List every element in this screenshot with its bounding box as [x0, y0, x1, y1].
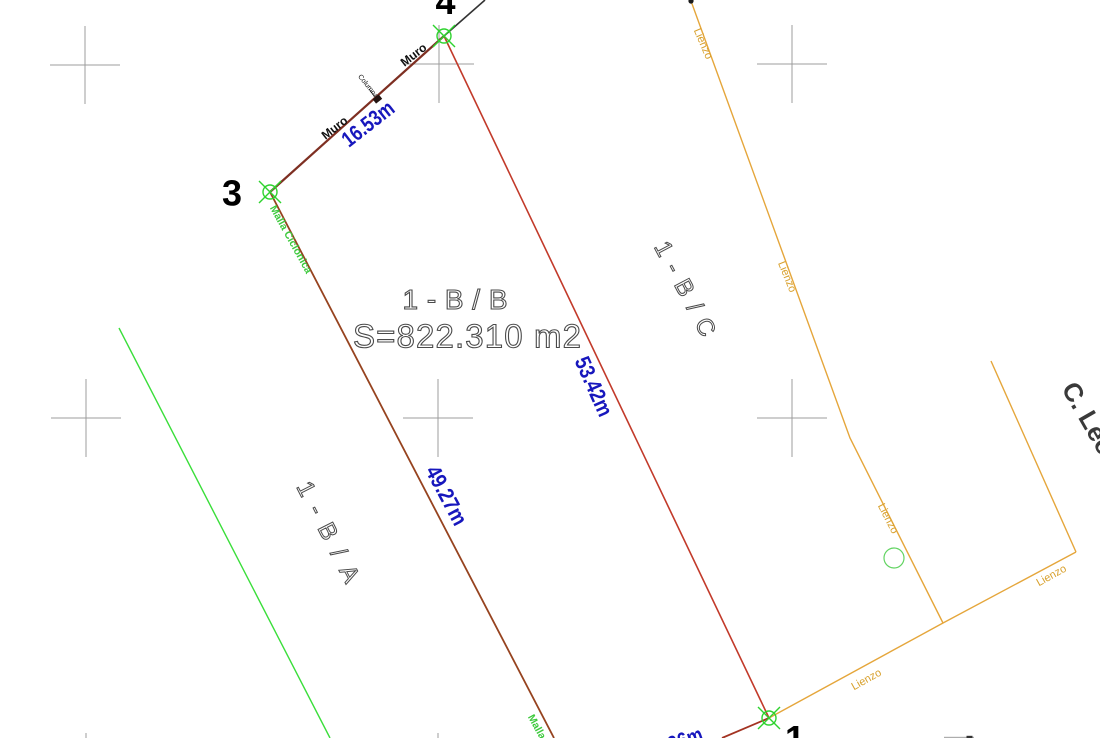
- svg-text:4: 4: [436, 0, 456, 22]
- svg-text:3: 3: [222, 173, 242, 214]
- svg-text:1: 1: [785, 718, 805, 738]
- svg-text:S=822.310 m2: S=822.310 m2: [353, 318, 581, 355]
